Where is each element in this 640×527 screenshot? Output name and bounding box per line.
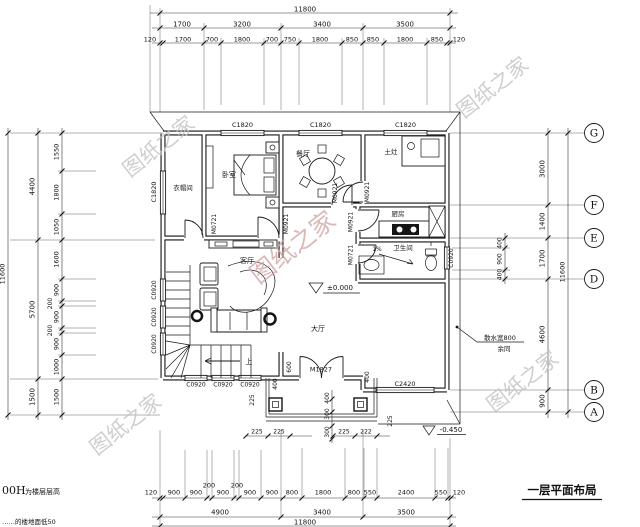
dims-bottom: 120 900 900 200 900 200 900 900 800 1800… — [145, 482, 465, 527]
dim: 3500 — [397, 509, 415, 517]
dim: 300 — [324, 408, 331, 420]
dim: 850 — [346, 36, 358, 44]
side-table — [192, 311, 202, 321]
room-label-bathroom: 卫生间 — [393, 243, 413, 252]
dim: 400 — [272, 378, 279, 390]
dim: 800 — [286, 489, 298, 497]
dim: 11600 — [0, 264, 7, 285]
dim: 600 — [286, 361, 293, 373]
dim: 225 — [251, 429, 263, 436]
dim: 850 — [431, 36, 443, 44]
note-floor-text: ……的楼地面低50 — [2, 517, 56, 526]
grid-letter-b: B — [590, 385, 598, 397]
dim: 900 — [244, 489, 256, 497]
dim: 700 — [266, 36, 278, 44]
window-label: C1820 — [150, 181, 158, 202]
grid-letter-a: A — [589, 407, 598, 419]
dim: 550 — [364, 489, 376, 497]
porch-column — [269, 398, 282, 411]
grid-bubbles: G F E D B A — [585, 124, 604, 422]
stairs-up-label: 上 — [246, 357, 253, 366]
door-label: M0921 — [348, 212, 355, 233]
dim: 900 — [497, 253, 504, 265]
dim: 3000 — [539, 160, 547, 178]
dim: 1700 — [175, 36, 192, 44]
dim: 900 — [168, 489, 180, 497]
dim: 1800 — [315, 489, 332, 497]
room-label-stove: 土灶 — [385, 147, 399, 156]
door-label: M0921 — [332, 183, 339, 204]
dims-left: 11600 4400 5700 1500 1550 1800 1050 1600… — [0, 144, 61, 406]
dim: 1550 — [53, 144, 61, 161]
dim: 550 — [435, 489, 447, 497]
floor-plan-drawing: 11800 1700 3200 3400 3500 120 1700 700 1… — [0, 0, 640, 527]
dim: 120 — [453, 489, 465, 497]
floor-plan-svg: 11800 1700 3200 3400 3500 120 1700 700 1… — [0, 0, 640, 527]
dim: 1050 — [53, 219, 61, 236]
watermark-text: 图纸之家 — [85, 389, 166, 460]
dim: 5700 — [29, 301, 37, 319]
dim: 3200 — [233, 21, 251, 29]
window-label: C0920 — [240, 382, 260, 389]
dim: 4400 — [29, 178, 37, 196]
dim: 225 — [387, 415, 394, 427]
grid-letter-f: F — [590, 200, 597, 212]
window-label: C0920 — [448, 248, 455, 268]
apron-annotation: 散水宽800 余同 — [456, 326, 524, 353]
dim: 800 — [348, 489, 360, 497]
dim: 900 — [539, 394, 547, 407]
room-label-hall: 大厅 — [311, 324, 325, 333]
page-title: 一层平面布局 — [528, 483, 597, 497]
dim: 200 — [231, 482, 243, 490]
dim: 120 — [144, 36, 156, 44]
dim: 300 — [324, 426, 331, 438]
dim: 1700 — [173, 21, 191, 29]
watermark-text: 图纸之家 — [452, 52, 533, 123]
window-label: C1820 — [310, 121, 331, 129]
dim: 400 — [324, 392, 331, 404]
dim: 1800 — [53, 184, 61, 201]
stove-counter-symbol — [402, 136, 445, 166]
dim: 900 — [53, 338, 61, 350]
note-height-prefix: 00H — [2, 484, 26, 497]
dim: 900 — [53, 284, 61, 296]
dim: 3500 — [396, 21, 414, 29]
dim: 225 — [249, 394, 256, 406]
slope-label: 1% — [372, 246, 382, 253]
dim: 700 — [206, 36, 218, 44]
bed-symbol — [206, 142, 279, 208]
drawing-notes: 00H 为楼层层高 ……的楼地面低50 — [2, 484, 60, 526]
dim: 900 — [266, 489, 278, 497]
watermark-text: 图纸之家 — [118, 111, 199, 182]
apron-note-text: 散水宽800 — [484, 333, 516, 342]
dim-bottom-total: 11800 — [294, 519, 316, 527]
room-label-dining: 餐厅 — [296, 149, 310, 158]
porch — [266, 378, 377, 421]
dim: 1600 — [53, 251, 61, 268]
dim: 900 — [190, 489, 202, 497]
dim: 200 — [47, 325, 54, 337]
dim: 120 — [145, 489, 157, 497]
window-label: C0920 — [151, 334, 158, 354]
porch-column — [354, 398, 367, 411]
window-label: C0920 — [213, 382, 233, 389]
dim: 4900 — [211, 509, 229, 517]
dim: 3400 — [313, 509, 331, 517]
dim: 1800 — [312, 36, 329, 44]
room-label-cloakroom: 衣帽间 — [173, 183, 193, 192]
armchair — [200, 263, 218, 285]
elevation-negative: -0.450 — [440, 426, 463, 434]
window-label: C2420 — [394, 380, 415, 388]
window-label: C0920 — [151, 280, 158, 300]
window-label: C0920 — [186, 382, 206, 389]
grid-letter-e: E — [590, 233, 598, 245]
apron-note-text2: 余同 — [498, 344, 511, 353]
note-height-text: 为楼层层高 — [25, 487, 60, 496]
dim: 400 — [497, 237, 504, 249]
dim: 1400 — [539, 213, 547, 231]
dim: 3400 — [313, 21, 331, 29]
dim: 222 — [360, 429, 372, 436]
dim: 1800 — [234, 36, 251, 44]
dim: 1000 — [53, 359, 61, 376]
window-label: C1820 — [395, 121, 416, 129]
dim: 120 — [453, 36, 465, 44]
dim: 2400 — [398, 489, 415, 497]
door-label: M0921 — [364, 182, 371, 203]
dim: 200 — [47, 298, 54, 310]
elevation-zero: ±0.000 — [327, 284, 353, 292]
grid-letter-d: D — [590, 274, 598, 286]
dim: 1800 — [397, 36, 414, 44]
dim: 1500 — [29, 388, 37, 406]
kitchen-counter-symbol — [379, 206, 445, 237]
door-label: M0721 — [211, 214, 218, 235]
dim: 200 — [203, 482, 215, 490]
grid-letter-g: G — [590, 128, 598, 140]
dim: 850 — [367, 36, 379, 44]
watermark-text: 图纸之家 — [482, 346, 563, 417]
dim: 225 — [338, 429, 350, 436]
door-label: M0721 — [348, 245, 355, 266]
dim: 1700 — [539, 250, 547, 268]
room-label-kitchen: 厨房 — [392, 209, 405, 218]
drawing-title: 一层平面布局 — [522, 483, 602, 500]
dim: 225 — [273, 429, 285, 436]
dim: 400 — [497, 269, 504, 281]
dims-top: 11800 1700 3200 3400 3500 120 1700 700 1… — [144, 6, 465, 44]
dim: 4600 — [539, 326, 547, 344]
dim: 900 — [53, 311, 61, 323]
dim-top-total: 11800 — [294, 6, 316, 14]
armchair — [200, 288, 218, 310]
sofa — [213, 310, 263, 332]
dim: 11600 — [559, 262, 567, 283]
dim: 400 — [364, 371, 371, 383]
dim: 900 — [217, 489, 229, 497]
door-label: M1827 — [310, 366, 332, 374]
dim: 750 — [284, 36, 296, 44]
window-label: C0920 — [151, 307, 158, 327]
dim: 1500 — [53, 389, 61, 406]
room-label-bedroom: 卧室 — [222, 170, 236, 179]
window-label: C1820 — [232, 121, 253, 129]
